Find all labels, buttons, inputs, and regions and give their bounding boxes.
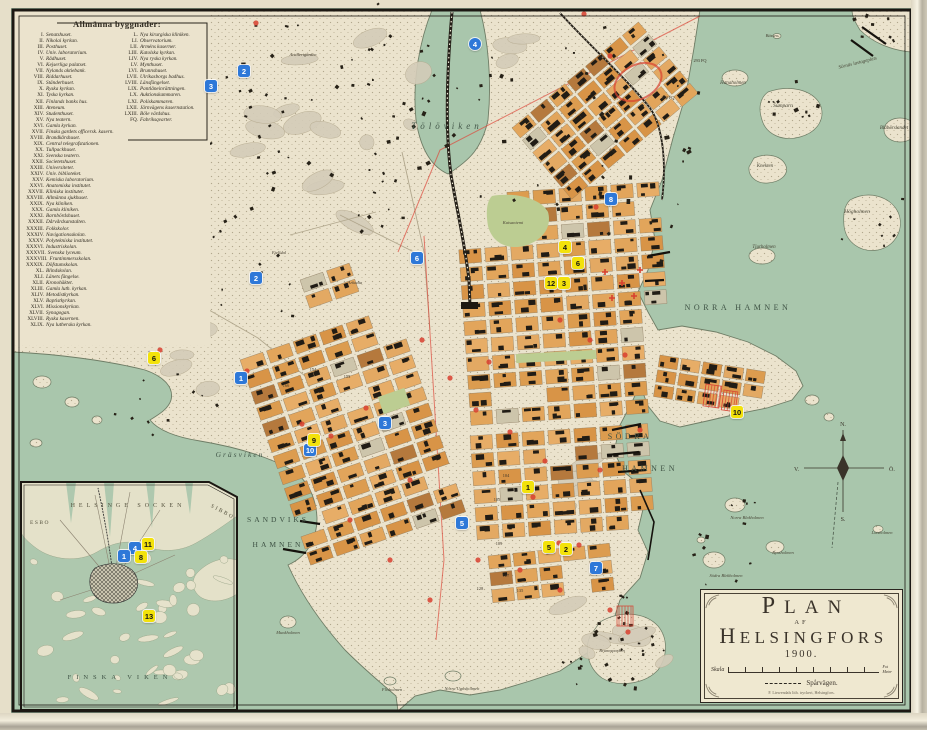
map-label-esbo: ESBO [30,520,50,526]
map-label-gr-sviken: Gräsviken [216,450,265,459]
map-marker-yellow-1[interactable]: 1 [522,481,534,493]
map-marker-yellow-2[interactable]: 2 [560,543,572,555]
svg-text:127: 127 [503,573,510,578]
map-label-sumparn: Sumparn [773,103,793,109]
svg-text:N.: N. [840,422,846,428]
map-marker-yellow-12[interactable]: 12 [545,277,557,289]
map-label-helsinge-socken: HELSINGE SOCKEN [71,503,186,509]
svg-text:109: 109 [496,541,502,546]
map-label-fjelldal: Fjelldal [271,250,287,255]
legend-right-column: L.Nya kirurgiska kliniken.LI.Observatori… [120,32,208,123]
svg-text:FQ: FQ [609,148,615,153]
map-marker-yellow-8[interactable]: 8 [135,551,147,563]
title-cartouche: Plan af Helsingfors 1900. Skala Fot Mete… [700,589,903,703]
map-marker-blue-2[interactable]: 2 [238,65,250,77]
map-label-bl-b-rslandet: Blåbärslandet [880,125,909,131]
svg-text:293 FQ: 293 FQ [693,58,707,63]
map-label-arkadia: Arkadia [347,280,363,285]
map-label-b-ssen: Bässen [766,33,779,38]
map-label-brunnsparken: Brunnsparken [599,648,625,653]
map-label-hanaholmen: Hanaholmen [719,81,746,86]
map-label-t-l-viken: Tölöviken [411,121,483,131]
map-marker-blue-7[interactable]: 7 [590,562,602,574]
svg-text:V.: V. [794,467,800,473]
map-marker-yellow-4[interactable]: 4 [559,241,571,253]
svg-text:S.: S. [841,517,846,523]
svg-text:104: 104 [503,473,510,478]
map-label-sandviks: SANDVIKS [247,515,309,524]
map-label-flisholmen: Flisholmen [381,687,403,692]
legend-title: Allmänna byggnader: [26,19,208,29]
svg-text:154: 154 [310,367,317,372]
map-label-munkholmen: Munkholmen [275,630,300,635]
map-marker-yellow-3[interactable]: 3 [558,277,570,289]
map-label-knekten: Knekten [756,164,774,169]
svg-text:135: 135 [517,588,523,593]
map-marker-blue-3[interactable]: 3 [205,80,217,92]
map-marker-yellow-11[interactable]: 11 [142,538,154,550]
map-label-finska-viken: FINSKA VIKEN [68,674,173,681]
map-marker-blue-6[interactable]: 6 [411,252,423,264]
page-edge-bottom [0,713,927,730]
map-marker-blue-2[interactable]: 2 [250,272,262,284]
map-marker-yellow-6[interactable]: 6 [572,257,584,269]
legend-item: XLIX.Nya lutherska kyrkan. [26,322,120,328]
map-marker-yellow-13[interactable]: 13 [143,610,155,622]
map-label-ryssholmen: Ryssholmen [771,550,794,555]
map-label-hamnen: HAMNEN [253,540,304,549]
map-label-kaisaniemi: Kaisaniemi [502,220,524,225]
map-label-norra-blekholmen: Norra Blekholmen [729,515,764,520]
svg-text:105: 105 [494,497,500,502]
svg-text:166: 166 [283,383,290,388]
map-label-h-gholmen: Högholmen [843,209,870,215]
map-marker-yellow-9[interactable]: 9 [308,434,320,446]
map-label-s-dra-blekholmen: Södra Blekholmen [709,573,743,578]
svg-text:153: 153 [344,374,350,379]
legend: Allmänna byggnader: I.Senatshuset.II.Nik… [26,19,208,328]
svg-text:128: 128 [477,586,483,591]
map-marker-blue-1[interactable]: 1 [118,550,130,562]
map-label-tjurholmen: Tjurholmen [752,245,776,250]
svg-text:Ö.: Ö. [889,466,895,473]
page-edge-right [911,0,927,730]
map-label-norra-hamnen: NORRA HAMNEN [685,303,792,312]
legend-left-column: I.Senatshuset.II.Nikolai kyrkan.III.Post… [26,32,120,328]
scanned-map-page: 154153166104105109127128135292 FQ293 FQF… [0,0,927,730]
map-label-lotsholmen: Lotsholmen [870,530,893,535]
map-label-hamnen: HAMNEN [622,464,678,473]
map-marker-yellow-6[interactable]: 6 [148,352,160,364]
map-marker-blue-3[interactable]: 3 [379,417,391,429]
map-label-artillerig-rden: Artillerigården [288,52,317,57]
inset-city [90,564,138,603]
map-marker-yellow-5[interactable]: 5 [543,541,555,553]
svg-text:292 FQ: 292 FQ [661,95,675,100]
map-label-norra-ugnsholmen: Norra Ugnsholmen [444,686,481,691]
map-marker-blue-5[interactable]: 5 [456,517,468,529]
map-marker-blue-8[interactable]: 8 [605,193,617,205]
map-marker-blue-1[interactable]: 1 [235,372,247,384]
map-label-s-dra: SÖDRA [608,432,653,441]
legend-item: FQ.Fabriksqvarter. [120,117,208,123]
map-marker-yellow-10[interactable]: 10 [731,406,743,418]
map-marker-blue-4[interactable]: 4 [469,38,481,50]
